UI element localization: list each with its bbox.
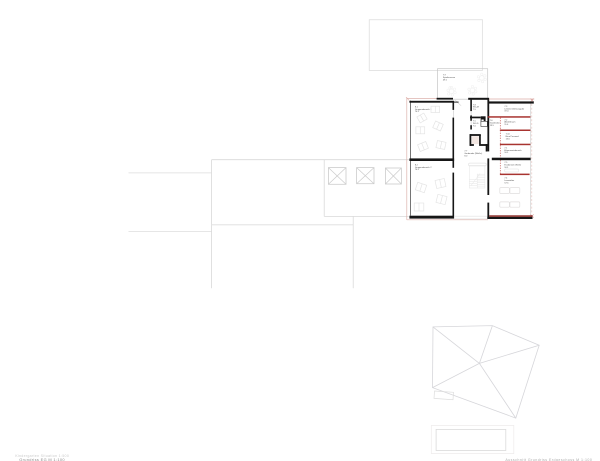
svg-text:Grundriss EG M 1:100: Grundriss EG M 1:100 [19, 457, 65, 461]
